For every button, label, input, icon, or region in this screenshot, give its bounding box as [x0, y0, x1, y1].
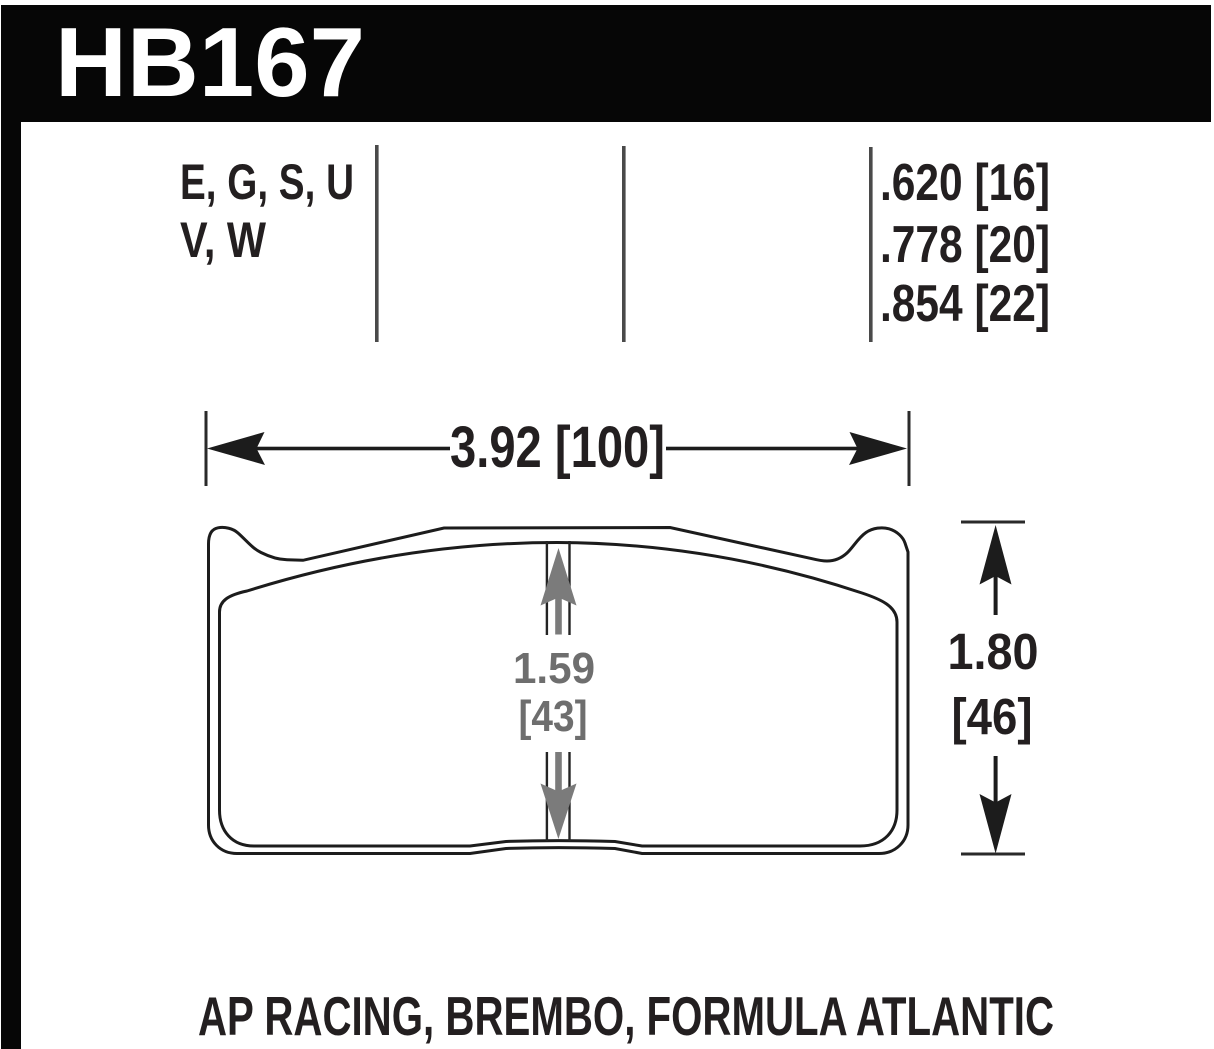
svg-text:AP RACING, BREMBO, FORMULA ATL: AP RACING, BREMBO, FORMULA ATLANTIC [198, 985, 1054, 1047]
svg-text:.854 [22]: .854 [22] [880, 275, 1050, 333]
svg-text:[43]: [43] [519, 692, 588, 741]
svg-text:[46]: [46] [952, 688, 1033, 745]
svg-text:HB167: HB167 [55, 7, 365, 117]
svg-text:3.92 [100]: 3.92 [100] [450, 415, 665, 480]
svg-text:.778 [20]: .778 [20] [880, 216, 1050, 274]
svg-text:1.59: 1.59 [513, 644, 595, 693]
svg-text:.620 [16]: .620 [16] [880, 154, 1050, 212]
svg-text:1.80: 1.80 [948, 623, 1039, 680]
svg-text:E, G, S, U: E, G, S, U [180, 154, 354, 210]
svg-text:V, W: V, W [180, 212, 267, 268]
